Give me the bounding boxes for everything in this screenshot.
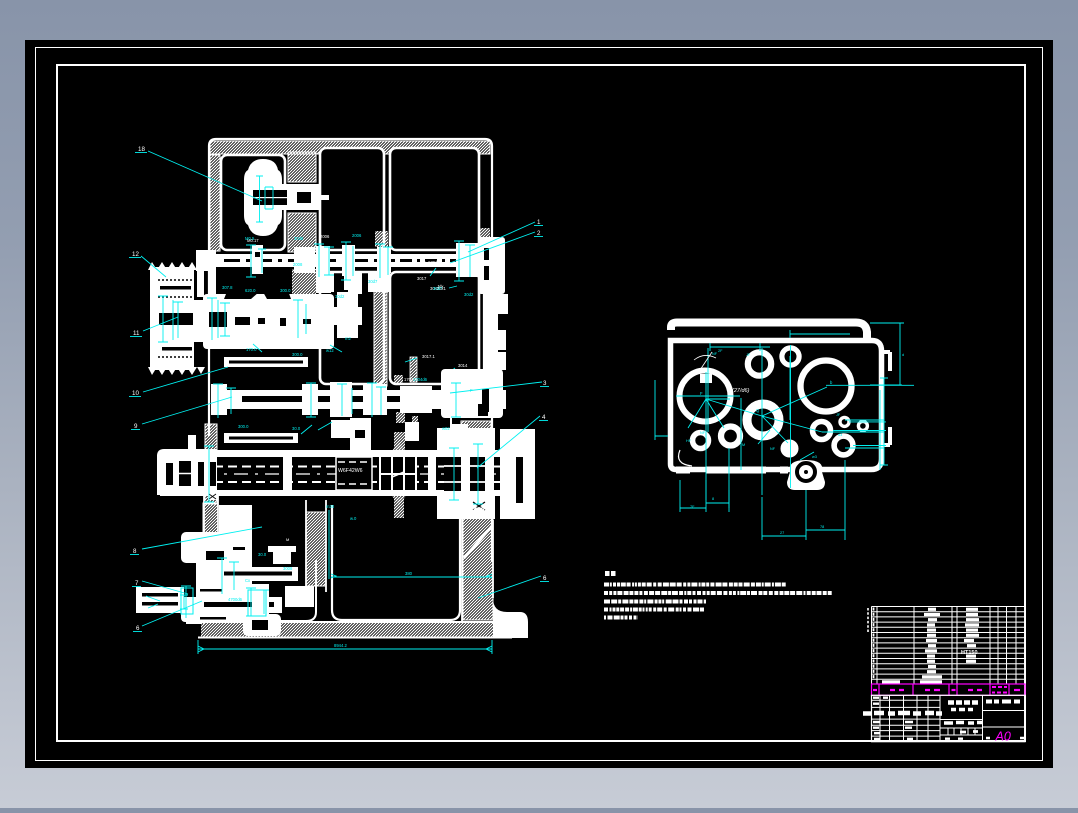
- svg-text:W6F42W6: W6F42W6: [338, 468, 363, 474]
- svg-text:A0: A0: [995, 730, 1011, 744]
- svg-text:2006: 2006: [352, 233, 362, 238]
- svg-text:30d7: 30d7: [433, 286, 443, 291]
- svg-text:18: 18: [138, 146, 145, 153]
- svg-text:307.8: 307.8: [222, 285, 233, 290]
- svg-text:JF: JF: [836, 413, 841, 417]
- svg-text:w02: w02: [442, 426, 450, 431]
- svg-text:30d2: 30d2: [335, 294, 345, 299]
- svg-text:F: F: [470, 388, 473, 393]
- svg-text:1704d6: 1704d6: [413, 377, 428, 382]
- svg-text:M: M: [286, 537, 289, 542]
- svg-text:HT150: HT150: [961, 650, 978, 656]
- svg-text:170.0: 170.0: [246, 347, 257, 352]
- svg-text:3017.1: 3017.1: [422, 354, 435, 359]
- svg-text:8944.2: 8944.2: [334, 643, 347, 648]
- svg-text:7F: 7F: [690, 505, 695, 509]
- svg-text:7: 7: [135, 580, 139, 587]
- svg-text:NF: NF: [770, 447, 776, 451]
- svg-text:d3: d3: [838, 433, 842, 437]
- svg-text:9: 9: [134, 423, 138, 430]
- svg-text:10: 10: [132, 390, 139, 397]
- svg-text:C8: C8: [231, 533, 237, 538]
- svg-text:d6: d6: [244, 541, 249, 546]
- svg-text:M0.5: M0.5: [245, 236, 255, 241]
- svg-text:30d7: 30d7: [344, 278, 354, 283]
- svg-text:3: 3: [543, 380, 547, 387]
- svg-text:w.0: w.0: [350, 516, 357, 521]
- svg-text:8: 8: [133, 548, 137, 555]
- svg-text:11: 11: [133, 330, 140, 337]
- svg-text:2008: 2008: [293, 262, 303, 267]
- svg-text:Cx: Cx: [245, 578, 251, 583]
- svg-text:300.0: 300.0: [292, 352, 303, 357]
- svg-text:4: 4: [542, 414, 546, 421]
- svg-text:30.0: 30.0: [258, 552, 267, 557]
- svg-text:1: 1: [537, 219, 541, 226]
- svg-text:w3: w3: [812, 455, 817, 459]
- svg-text:78: 78: [820, 525, 824, 529]
- svg-text:M: M: [742, 443, 745, 447]
- svg-text:JF: JF: [746, 353, 751, 357]
- svg-text:12: 12: [132, 251, 139, 258]
- svg-text:6: 6: [543, 575, 547, 582]
- svg-text:27: 27: [780, 531, 784, 535]
- svg-text:m30: m30: [326, 504, 335, 509]
- svg-text:m2: m2: [345, 336, 351, 341]
- svg-text:4700d6: 4700d6: [228, 597, 243, 602]
- svg-text:(27/d6): (27/d6): [732, 388, 750, 394]
- svg-text:30d7: 30d7: [368, 279, 378, 284]
- svg-text:30d2: 30d2: [464, 292, 474, 297]
- svg-text:2: 2: [537, 230, 541, 237]
- svg-text:3014: 3014: [458, 363, 468, 368]
- svg-text:6: 6: [136, 625, 140, 632]
- svg-text:300.0: 300.0: [280, 288, 291, 293]
- svg-text:3008: 3008: [283, 566, 293, 571]
- svg-text:2F: 2F: [718, 349, 723, 353]
- svg-text:F: F: [700, 391, 703, 396]
- svg-text:300.0: 300.0: [238, 424, 249, 429]
- svg-text:8: 8: [712, 497, 714, 501]
- svg-text:3017: 3017: [417, 276, 427, 281]
- svg-text:NF: NF: [700, 431, 706, 435]
- svg-text:170kd6: 170kd6: [418, 261, 432, 266]
- svg-text:30d8: 30d8: [294, 236, 304, 241]
- svg-text:NF: NF: [712, 352, 718, 356]
- svg-text:d: d: [902, 353, 904, 357]
- svg-text:620.0: 620.0: [245, 288, 256, 293]
- svg-text:30d7: 30d7: [368, 286, 378, 291]
- svg-text:HF: HF: [686, 439, 692, 443]
- svg-text:380: 380: [405, 571, 413, 576]
- svg-text:w12: w12: [326, 348, 334, 353]
- svg-text:30.0: 30.0: [292, 426, 301, 431]
- svg-text:2006: 2006: [320, 234, 330, 239]
